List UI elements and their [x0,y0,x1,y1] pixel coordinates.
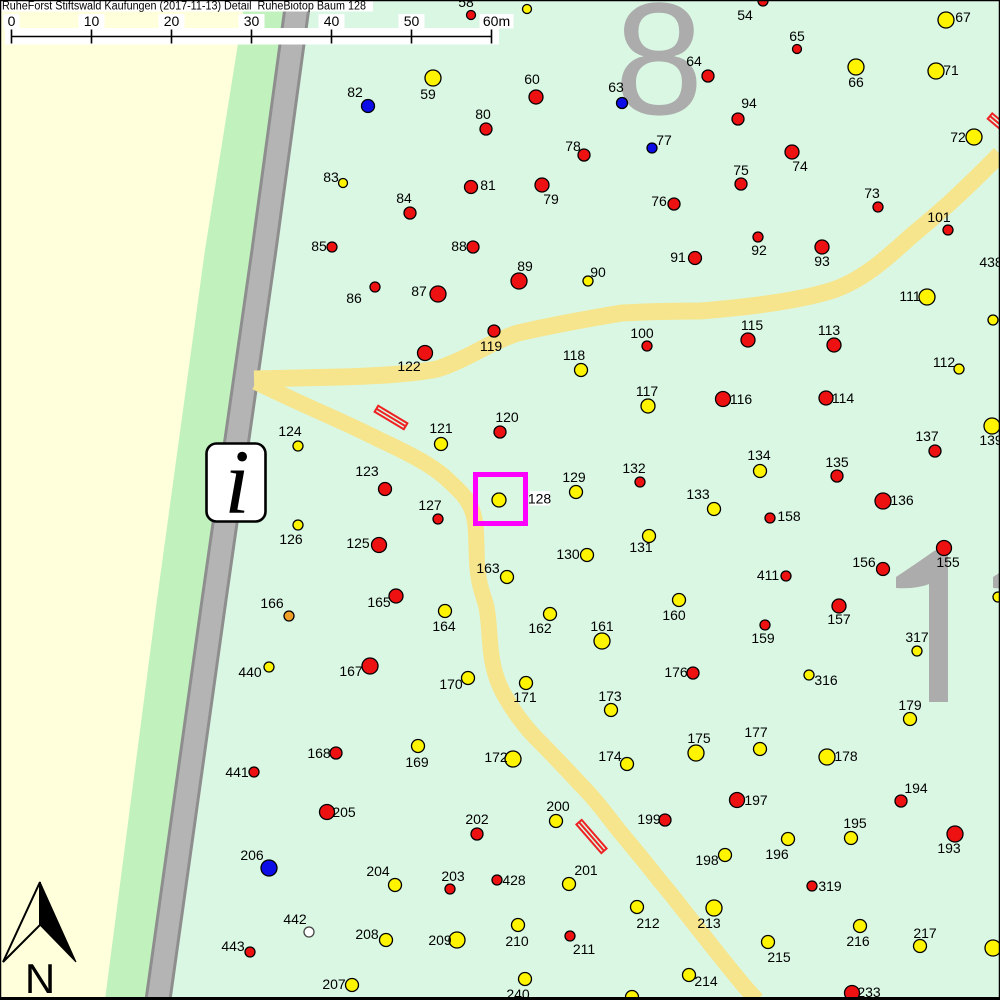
svg-text:319: 319 [818,878,842,894]
svg-text:111: 111 [899,288,920,304]
svg-text:i: i [224,431,250,533]
svg-text:441: 441 [225,764,249,780]
svg-text:114: 114 [832,390,855,406]
svg-text:206: 206 [240,847,264,863]
svg-text:169: 169 [405,754,429,770]
svg-text:212: 212 [636,915,660,931]
svg-text:91: 91 [670,249,686,265]
svg-text:139: 139 [979,432,1000,448]
svg-text:428: 428 [502,872,526,888]
svg-text:164: 164 [432,618,456,634]
svg-text:135: 135 [825,454,849,470]
svg-text:160: 160 [662,607,686,623]
svg-text:77: 77 [656,132,672,148]
svg-text:67: 67 [955,9,971,25]
svg-text:121: 121 [429,420,453,436]
svg-text:197: 197 [744,792,768,808]
svg-text:201: 201 [574,862,598,878]
svg-text:66: 66 [848,74,864,90]
svg-text:65: 65 [789,28,805,44]
svg-text:210: 210 [505,933,529,949]
svg-text:440: 440 [238,664,262,680]
svg-text:58: 58 [458,0,474,10]
svg-text:78: 78 [565,138,581,154]
svg-text:132: 132 [622,460,646,476]
svg-text:168: 168 [307,745,331,761]
svg-text:159: 159 [751,630,775,646]
svg-text:60m: 60m [483,13,510,29]
svg-text:64: 64 [686,53,702,69]
svg-text:76: 76 [651,193,667,209]
svg-text:119: 119 [480,338,503,354]
svg-text:166: 166 [260,595,284,611]
svg-text:216: 216 [846,933,870,949]
svg-text:203: 203 [441,868,465,884]
svg-text:211: 211 [573,941,596,957]
svg-text:92: 92 [751,242,767,258]
svg-text:165: 165 [367,594,391,610]
svg-text:87: 87 [411,283,427,299]
svg-text:171: 171 [513,689,537,705]
svg-text:10: 10 [84,13,100,29]
svg-text:73: 73 [864,185,880,201]
svg-text:162: 162 [528,620,552,636]
svg-text:59: 59 [420,86,436,102]
svg-text:63: 63 [608,79,624,95]
svg-text:442: 442 [283,911,307,927]
svg-text:157: 157 [827,611,851,627]
svg-text:127: 127 [418,497,442,513]
svg-text:122: 122 [397,358,421,374]
svg-text:204: 204 [366,863,390,879]
svg-text:438: 438 [979,254,1000,270]
svg-text:82: 82 [347,84,363,100]
svg-text:50: 50 [404,13,420,29]
svg-text:131: 131 [629,539,653,555]
svg-text:136: 136 [890,492,914,508]
svg-text:116: 116 [730,391,753,407]
svg-text:170: 170 [439,676,463,692]
svg-text:208: 208 [355,926,379,942]
svg-text:155: 155 [936,554,960,570]
svg-text:125: 125 [346,535,370,551]
svg-text:130: 130 [556,546,580,562]
svg-text:113: 113 [818,322,841,338]
svg-text:128: 128 [528,491,552,507]
svg-text:200: 200 [546,798,570,814]
svg-text:72: 72 [950,129,966,145]
svg-text:115: 115 [741,317,764,333]
svg-text:88: 88 [451,238,467,254]
svg-text:167: 167 [339,663,363,679]
svg-text:196: 196 [765,846,789,862]
svg-text:126: 126 [279,531,303,547]
svg-text:80: 80 [475,106,491,122]
svg-text:193: 193 [937,840,961,856]
svg-text:176: 176 [664,664,688,680]
svg-text:411: 411 [757,567,780,583]
svg-text:124: 124 [278,423,302,439]
svg-text:85: 85 [311,238,327,254]
svg-text:163: 163 [476,560,500,576]
svg-text:175: 175 [687,730,711,746]
svg-text:133: 133 [686,486,710,502]
svg-text:93: 93 [814,253,830,269]
svg-text:90: 90 [590,264,606,280]
svg-text:207: 207 [322,976,346,992]
svg-text:120: 120 [495,409,519,425]
svg-text:N: N [25,955,55,1000]
svg-text:0: 0 [8,13,16,29]
svg-text:94: 94 [741,95,757,111]
svg-text:112: 112 [933,354,956,370]
svg-text:60: 60 [524,71,540,87]
svg-text:213: 213 [697,915,721,931]
svg-text:89: 89 [517,258,533,274]
svg-text:174: 174 [598,748,622,764]
svg-text:215: 215 [767,949,791,965]
svg-text:100: 100 [630,325,654,341]
svg-text:86: 86 [346,290,362,306]
svg-text:81: 81 [480,177,496,193]
svg-text:54: 54 [737,7,753,23]
svg-text:117: 117 [636,383,659,399]
svg-text:178: 178 [834,748,858,764]
svg-text:179: 179 [898,697,922,713]
svg-text:20: 20 [164,13,180,29]
svg-text:209: 209 [428,932,452,948]
svg-text:118: 118 [563,347,586,363]
svg-text:443: 443 [221,938,245,954]
svg-text:123: 123 [355,463,379,479]
svg-text:74: 74 [792,158,808,174]
svg-text:205: 205 [332,804,356,820]
svg-text:101: 101 [927,209,951,225]
svg-text:316: 316 [814,672,838,688]
svg-text:194: 194 [904,780,928,796]
svg-text:172: 172 [484,749,508,765]
svg-text:71: 71 [943,62,959,78]
svg-text:214: 214 [694,973,718,989]
svg-text:129: 129 [562,469,586,485]
svg-text:137: 137 [915,428,939,444]
svg-text:173: 173 [598,688,622,704]
svg-text:317: 317 [905,629,929,645]
svg-text:75: 75 [733,162,749,178]
svg-text:217: 217 [913,925,937,941]
svg-text:40: 40 [324,13,340,29]
svg-text:158: 158 [777,508,801,524]
svg-text:156: 156 [852,554,876,570]
svg-text:177: 177 [744,724,768,740]
svg-text:134: 134 [747,447,771,463]
svg-text:195: 195 [843,815,867,831]
svg-text:161: 161 [590,618,614,634]
svg-text:84: 84 [396,190,412,206]
svg-text:198: 198 [695,852,719,868]
svg-text:202: 202 [465,811,489,827]
svg-text:RuheForst Stiftswald Kaufungen: RuheForst Stiftswald Kaufungen (2017-11-… [2,1,366,13]
svg-text:8: 8 [615,0,704,148]
svg-text:30: 30 [244,13,260,29]
svg-text:83: 83 [323,169,339,185]
svg-text:79: 79 [543,191,559,207]
svg-text:199: 199 [637,811,661,827]
